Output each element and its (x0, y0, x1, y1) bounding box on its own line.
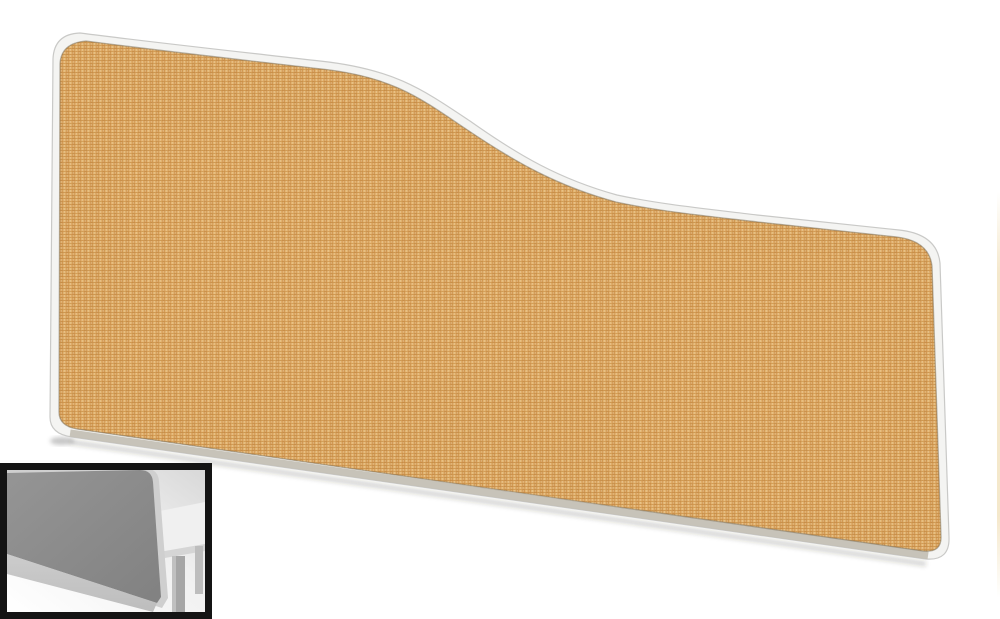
product-photo-stage (0, 0, 1000, 619)
thumbnail-grey-variant[interactable] (0, 463, 212, 619)
